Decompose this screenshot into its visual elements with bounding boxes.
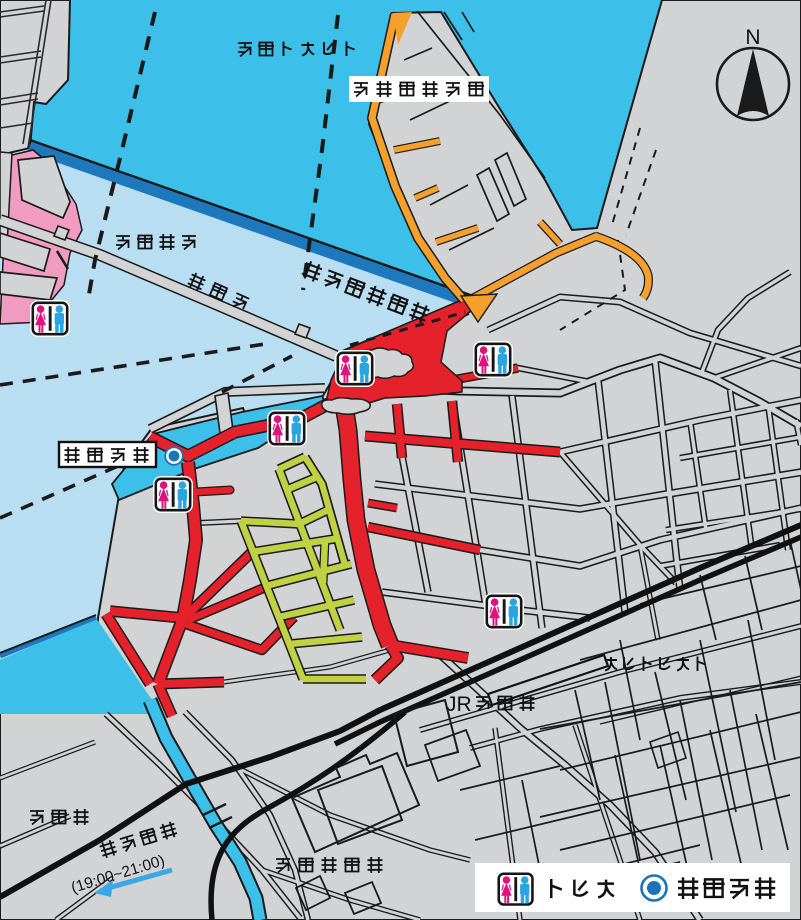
svg-text:JR: JR	[446, 693, 472, 716]
svg-text:N: N	[745, 26, 760, 49]
